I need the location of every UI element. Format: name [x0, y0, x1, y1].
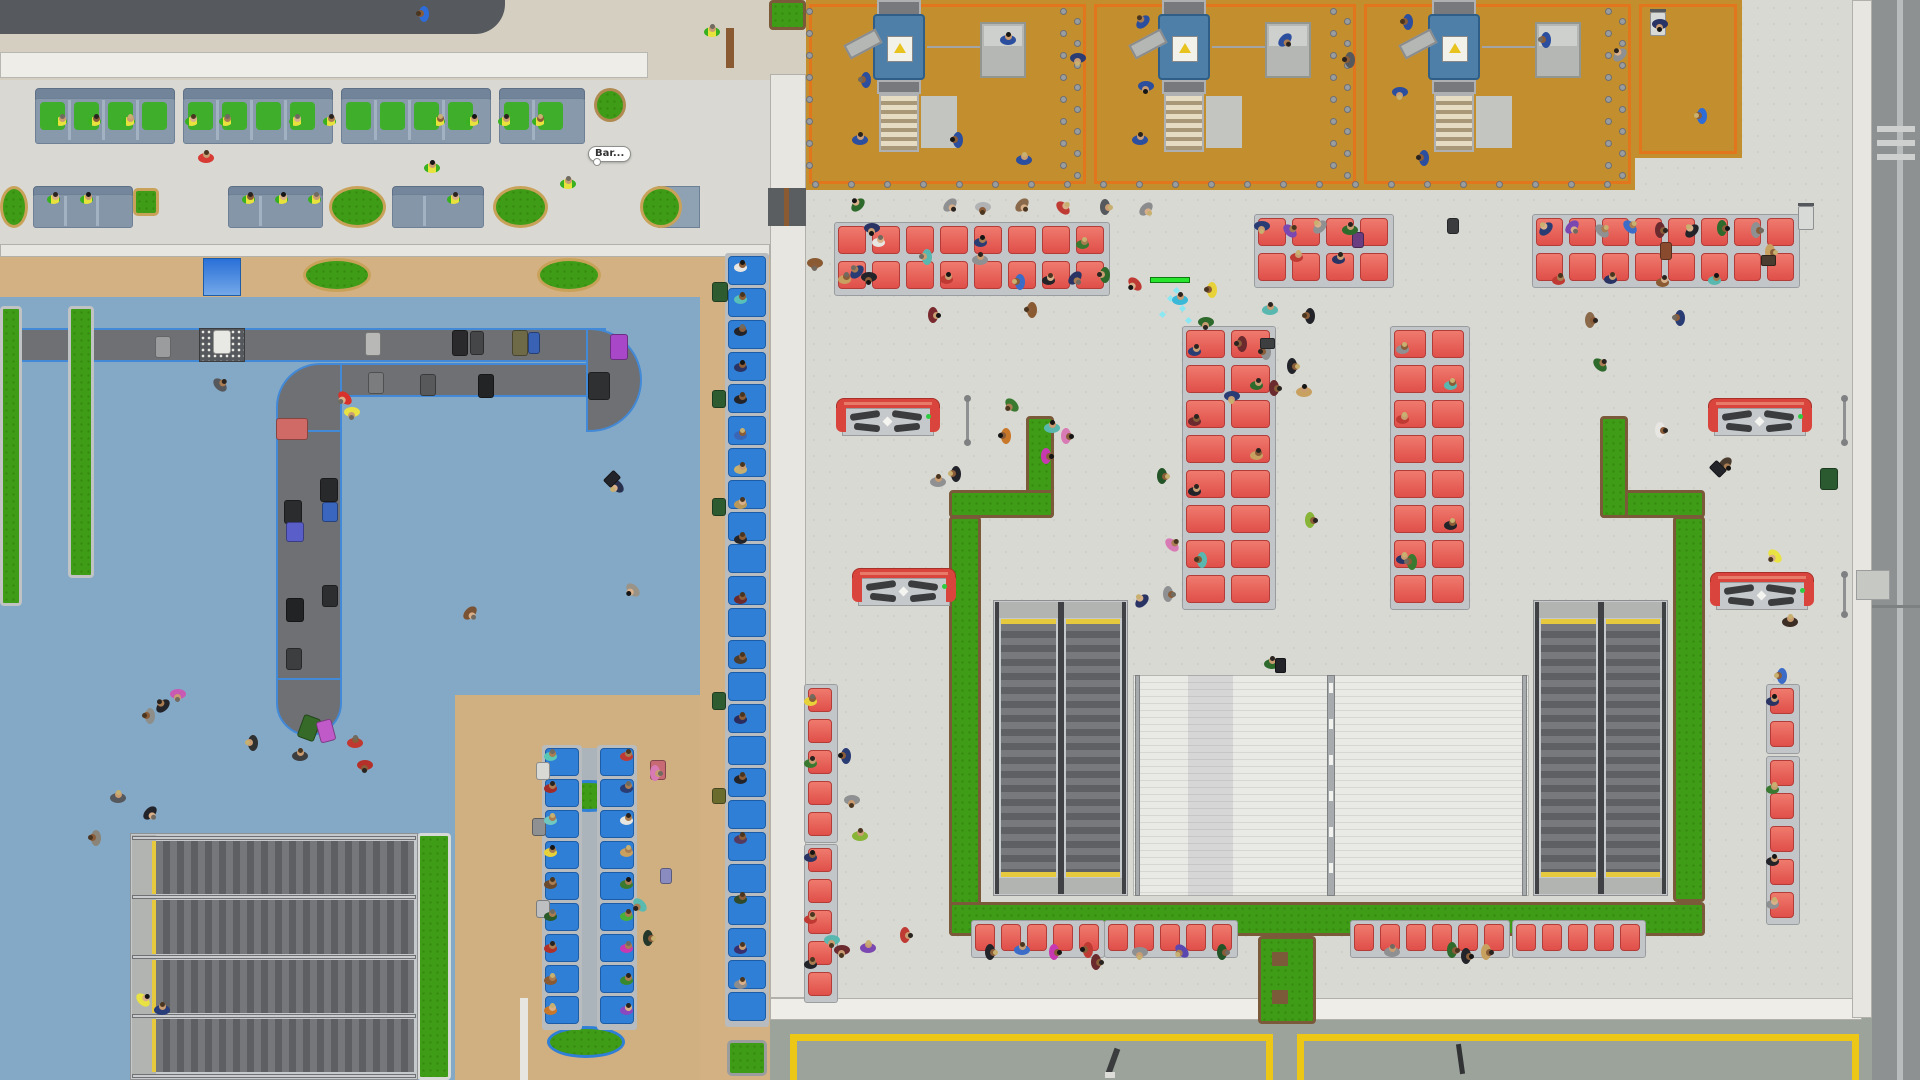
escalator-rail — [1662, 602, 1666, 894]
passenger[interactable] — [1159, 585, 1177, 603]
seat-strip-wall-left-1[interactable] — [808, 812, 832, 836]
kiosk-roof-stripe — [844, 402, 932, 405]
bench-armrest — [259, 196, 262, 226]
passenger[interactable] — [1257, 343, 1275, 361]
passenger[interactable] — [860, 268, 878, 286]
passenger[interactable] — [803, 956, 821, 974]
staff-member[interactable] — [184, 113, 202, 131]
person-hair — [1772, 897, 1777, 902]
passenger[interactable] — [859, 939, 877, 957]
passenger[interactable] — [543, 1002, 561, 1020]
security-officer[interactable] — [1537, 31, 1555, 49]
passenger[interactable] — [1096, 198, 1114, 216]
baggage-intake-chute[interactable] — [203, 258, 241, 296]
security-officer[interactable] — [1415, 149, 1433, 167]
hedge[interactable] — [1600, 416, 1628, 518]
planter-oval[interactable] — [594, 88, 626, 122]
passenger[interactable] — [1341, 221, 1359, 239]
passenger[interactable] — [939, 271, 957, 289]
passenger[interactable] — [733, 323, 751, 341]
passenger[interactable] — [1477, 943, 1495, 961]
seat-row-bottom-right-1[interactable] — [1354, 924, 1374, 951]
passenger[interactable] — [1655, 274, 1673, 292]
passenger[interactable] — [543, 748, 561, 766]
passenger[interactable] — [619, 876, 637, 894]
kiosk-status-light — [1800, 588, 1805, 593]
passenger[interactable] — [947, 465, 965, 483]
passenger[interactable] — [733, 941, 751, 959]
seat-column-mid-left[interactable] — [1186, 575, 1225, 603]
passenger[interactable] — [1096, 266, 1114, 284]
passenger[interactable] — [733, 591, 751, 609]
escalator-rail — [132, 955, 416, 959]
passenger[interactable] — [733, 651, 751, 669]
passenger[interactable] — [843, 791, 861, 809]
seat-column-mid-right[interactable] — [1432, 540, 1464, 568]
passenger[interactable] — [733, 427, 751, 445]
seat-column-mid-right[interactable] — [1394, 435, 1426, 463]
seat-row-bottom-left-2[interactable] — [1108, 924, 1128, 951]
passenger[interactable] — [1187, 483, 1205, 501]
passenger[interactable] — [1283, 357, 1301, 375]
seat-column-mid-left[interactable] — [1231, 540, 1270, 568]
passenger[interactable] — [1651, 421, 1669, 439]
seat-row-b[interactable] — [1258, 253, 1286, 281]
seat-strip-wall-left-1[interactable] — [808, 719, 832, 743]
queue-stanchion-dot — [1028, 181, 1035, 188]
passenger[interactable] — [619, 812, 637, 830]
seat-column-mid-left[interactable] — [1186, 365, 1225, 393]
passenger[interactable] — [197, 149, 215, 167]
person-hair — [858, 828, 863, 833]
passenger[interactable] — [1023, 301, 1041, 319]
seat-strip-wall-right-2[interactable] — [1770, 826, 1794, 852]
passenger[interactable] — [733, 496, 751, 514]
passenger[interactable] — [291, 747, 309, 765]
passenger[interactable] — [981, 943, 999, 961]
staff-member[interactable] — [121, 113, 139, 131]
tan-strip-baggage — [0, 257, 770, 297]
passenger[interactable] — [1671, 309, 1689, 327]
passenger[interactable] — [1747, 221, 1765, 239]
passenger[interactable] — [109, 789, 127, 807]
seat-column-mid-right[interactable] — [1394, 365, 1426, 393]
person-hair — [1069, 434, 1074, 439]
passenger[interactable] — [543, 812, 561, 830]
waiting-bench[interactable] — [392, 194, 484, 228]
person-hair — [740, 292, 745, 297]
passenger[interactable] — [1187, 343, 1205, 361]
passenger[interactable] — [543, 972, 561, 990]
hedge[interactable] — [0, 306, 22, 606]
seat-row-bottom-right-2[interactable] — [1620, 924, 1640, 951]
passenger[interactable] — [1651, 221, 1669, 239]
seat-row-bottom-right-2[interactable] — [1568, 924, 1588, 951]
passenger[interactable] — [1223, 387, 1241, 405]
passenger[interactable] — [153, 1001, 171, 1019]
bench-column-corridor[interactable] — [728, 800, 766, 829]
passenger[interactable] — [646, 764, 664, 782]
passenger[interactable] — [141, 707, 159, 725]
luggage-item — [712, 498, 726, 516]
escalator-rail — [132, 836, 416, 840]
passenger[interactable] — [973, 234, 991, 252]
passenger[interactable] — [1069, 49, 1087, 67]
person-hair — [950, 137, 955, 142]
xray-scan-item-icon — [894, 43, 906, 53]
passenger[interactable] — [1289, 249, 1307, 267]
passenger[interactable] — [415, 5, 433, 23]
passenger[interactable] — [1395, 411, 1413, 429]
staff-member[interactable] — [307, 191, 325, 209]
person-hair — [998, 433, 1003, 438]
planter-oval[interactable] — [0, 186, 28, 228]
stanchion-ball — [1841, 571, 1848, 578]
passenger[interactable] — [1213, 943, 1231, 961]
person-hair — [810, 850, 815, 855]
passenger[interactable] — [619, 972, 637, 990]
passenger[interactable] — [543, 844, 561, 862]
seat-column-mid-left[interactable] — [1186, 505, 1225, 533]
passenger[interactable] — [1193, 551, 1211, 569]
seat-row-bottom-right-2[interactable] — [1594, 924, 1614, 951]
passenger[interactable] — [733, 531, 751, 549]
passenger[interactable] — [1265, 379, 1283, 397]
passenger[interactable] — [1249, 377, 1267, 395]
hedge[interactable] — [769, 0, 806, 30]
passenger[interactable] — [1551, 272, 1569, 290]
planter-oval[interactable] — [303, 258, 371, 292]
wall-sliver-foodcourt — [520, 998, 528, 1080]
passenger[interactable] — [1011, 273, 1029, 291]
passenger[interactable] — [971, 251, 989, 269]
passenger[interactable] — [837, 747, 855, 765]
passenger[interactable] — [733, 976, 751, 994]
hedge[interactable] — [68, 306, 94, 578]
security-officer[interactable] — [1391, 83, 1409, 101]
seat-column-mid-right[interactable] — [1432, 575, 1464, 603]
seat-column-mid-right[interactable] — [1432, 470, 1464, 498]
person-hair — [1296, 250, 1301, 255]
bench-column-corridor[interactable] — [728, 672, 766, 701]
staff-member[interactable] — [497, 113, 515, 131]
staff-member[interactable] — [559, 175, 577, 193]
queue-stanchion-dot — [1100, 181, 1107, 188]
xray-exit-conveyor[interactable] — [877, 80, 921, 94]
passenger[interactable] — [1693, 107, 1711, 125]
passenger[interactable] — [543, 876, 561, 894]
passenger[interactable] — [619, 940, 637, 958]
passenger[interactable] — [1057, 427, 1075, 445]
passenger[interactable] — [1765, 693, 1783, 711]
seat-column-mid-right[interactable] — [1394, 505, 1426, 533]
security-officer[interactable] — [1399, 13, 1417, 31]
escalator-yellow-strip — [1541, 619, 1596, 624]
passenger[interactable] — [803, 693, 821, 711]
passenger[interactable] — [733, 359, 751, 377]
passenger[interactable] — [1383, 943, 1401, 961]
passenger[interactable] — [1331, 251, 1349, 269]
staff-member[interactable] — [465, 113, 483, 131]
hedge[interactable] — [1258, 936, 1316, 1024]
passenger[interactable] — [1443, 377, 1461, 395]
passenger[interactable] — [851, 827, 869, 845]
xray-exit-conveyor[interactable] — [1162, 80, 1206, 94]
person-hair — [1256, 448, 1261, 453]
escalator-rail — [132, 1074, 416, 1078]
luggage-item — [322, 502, 338, 522]
passenger[interactable] — [1773, 667, 1791, 685]
passenger[interactable] — [803, 849, 821, 867]
seat-row-c[interactable] — [1569, 253, 1596, 281]
passenger[interactable] — [619, 1002, 637, 1020]
passenger[interactable] — [871, 234, 889, 252]
seat-strip-wall-left-2[interactable] — [808, 879, 832, 903]
planter-oval[interactable] — [537, 258, 601, 292]
luggage-item — [478, 374, 494, 398]
passenger[interactable] — [356, 756, 374, 774]
hedge[interactable] — [417, 833, 451, 1080]
seat-column-mid-right[interactable] — [1394, 470, 1426, 498]
passenger[interactable] — [1153, 467, 1171, 485]
stanchion-pole — [1843, 398, 1846, 442]
passenger[interactable] — [1263, 655, 1281, 673]
game-viewport[interactable]: Bar... — [0, 0, 1920, 1080]
ground-mark — [1877, 140, 1915, 146]
passenger[interactable] — [837, 271, 855, 289]
queue-stanchion-dot — [1330, 8, 1337, 15]
security-officer[interactable] — [851, 131, 869, 149]
security-officer[interactable] — [857, 71, 875, 89]
queue-stanchion-dot — [1344, 172, 1351, 179]
person-hair — [53, 192, 58, 197]
passenger[interactable] — [1457, 947, 1475, 965]
hedge[interactable] — [1673, 516, 1705, 902]
security-officer[interactable] — [1131, 131, 1149, 149]
passenger[interactable] — [803, 911, 821, 929]
person-hair — [1194, 484, 1199, 489]
seat-row-bottom-right-1[interactable] — [1406, 924, 1426, 951]
seat-row-a[interactable] — [1042, 226, 1070, 254]
passenger[interactable] — [1171, 291, 1189, 309]
passenger[interactable] — [1301, 307, 1319, 325]
bench-column-corridor[interactable] — [728, 736, 766, 765]
stanchion-pole — [1843, 574, 1846, 614]
staff-member[interactable] — [218, 113, 236, 131]
staff-member[interactable] — [53, 113, 71, 131]
passenger[interactable] — [1087, 953, 1105, 971]
staff-member[interactable] — [288, 113, 306, 131]
passenger[interactable] — [1187, 413, 1205, 431]
passenger[interactable] — [806, 254, 824, 272]
passenger[interactable] — [924, 306, 942, 324]
passenger[interactable] — [346, 734, 364, 752]
passenger[interactable] — [997, 427, 1015, 445]
passenger[interactable] — [1261, 301, 1279, 319]
security-officer[interactable] — [1015, 151, 1033, 169]
kiosk-status-light — [942, 584, 947, 589]
luggage-item — [660, 868, 672, 884]
passenger[interactable] — [343, 403, 361, 421]
seat-column-mid-left[interactable] — [1231, 505, 1270, 533]
person-hair — [919, 254, 924, 259]
passenger[interactable] — [619, 780, 637, 798]
passenger[interactable] — [929, 473, 947, 491]
queue-stanchion-dot — [956, 181, 963, 188]
staff-member[interactable] — [274, 191, 292, 209]
staff-member[interactable] — [703, 23, 721, 41]
passenger[interactable] — [733, 291, 751, 309]
person-hair — [810, 912, 815, 917]
passenger[interactable] — [543, 780, 561, 798]
staff-member[interactable] — [431, 113, 449, 131]
escalator-steps — [1606, 624, 1661, 872]
passenger[interactable] — [1045, 943, 1063, 961]
staff-member[interactable] — [531, 113, 549, 131]
escalator-yellow-strip — [1001, 619, 1056, 624]
passenger[interactable] — [1765, 781, 1783, 799]
seat-column-mid-right[interactable] — [1432, 435, 1464, 463]
passenger[interactable] — [1301, 511, 1319, 529]
passenger[interactable] — [1075, 236, 1093, 254]
passenger[interactable] — [639, 929, 657, 947]
seat-row-c[interactable] — [1734, 253, 1761, 281]
seat-row-b[interactable] — [1360, 253, 1388, 281]
passenger[interactable] — [1765, 896, 1783, 914]
passenger[interactable] — [1233, 335, 1251, 353]
seat-row-a[interactable] — [1008, 226, 1036, 254]
hedge[interactable] — [949, 490, 1054, 518]
staff-member[interactable] — [87, 113, 105, 131]
xray-exit-conveyor[interactable] — [1432, 80, 1476, 94]
seat-column-mid-right[interactable] — [1432, 400, 1464, 428]
bench-armrest — [64, 196, 67, 226]
queue-stanchion-dot — [806, 74, 813, 81]
passenger[interactable] — [1761, 243, 1779, 261]
passenger[interactable] — [733, 461, 751, 479]
planter-oval[interactable] — [547, 1026, 625, 1058]
person-hair — [1225, 950, 1230, 955]
passenger[interactable] — [1765, 853, 1783, 871]
luggage-item — [512, 330, 528, 356]
passenger[interactable] — [1603, 271, 1621, 289]
bench-column-corridor[interactable] — [728, 992, 766, 1021]
passenger[interactable] — [1781, 613, 1799, 631]
passenger[interactable] — [169, 685, 187, 703]
passenger[interactable] — [1443, 517, 1461, 535]
seat-row-a[interactable] — [940, 226, 968, 254]
seat-row-bottom-right-2[interactable] — [1542, 924, 1562, 951]
person-hair — [710, 24, 715, 29]
passenger[interactable] — [733, 891, 751, 909]
queue-stanchion-dot — [806, 52, 813, 59]
passenger[interactable] — [1253, 217, 1271, 235]
passenger[interactable] — [803, 755, 821, 773]
planter-oval[interactable] — [640, 186, 682, 228]
passenger[interactable] — [918, 248, 936, 266]
passenger[interactable] — [896, 926, 914, 944]
security-officer[interactable] — [1137, 77, 1155, 95]
seat-column-mid-right[interactable] — [1432, 330, 1464, 358]
seat-row-bottom-right-2[interactable] — [1516, 924, 1536, 951]
passenger[interactable] — [733, 259, 751, 277]
staff-member[interactable] — [241, 191, 259, 209]
planter-square[interactable] — [133, 188, 159, 216]
planter-square[interactable] — [727, 1040, 767, 1076]
passenger[interactable] — [1197, 313, 1215, 331]
security-officer[interactable] — [949, 131, 967, 149]
seat-strip-wall-left-2[interactable] — [808, 972, 832, 996]
staff-member[interactable] — [322, 113, 340, 131]
planter-oval[interactable] — [329, 186, 386, 228]
bench-column-corridor[interactable] — [728, 864, 766, 893]
person-hair — [1714, 273, 1719, 278]
passenger[interactable] — [1295, 383, 1313, 401]
person-hair — [1012, 279, 1017, 284]
passenger[interactable] — [1131, 943, 1149, 961]
passenger[interactable] — [1203, 281, 1221, 299]
passenger[interactable] — [1341, 51, 1359, 69]
bench-column-corridor[interactable] — [728, 608, 766, 637]
passenger[interactable] — [1013, 941, 1031, 959]
passenger[interactable] — [619, 844, 637, 862]
person-hair — [1108, 205, 1113, 210]
passenger[interactable] — [733, 711, 751, 729]
seat-strip-wall-left-1[interactable] — [808, 781, 832, 805]
passenger[interactable] — [244, 734, 262, 752]
security-officer[interactable] — [999, 31, 1017, 49]
right-service-road — [1872, 0, 1920, 1080]
passenger[interactable] — [733, 391, 751, 409]
seat-column-mid-right[interactable] — [1394, 575, 1426, 603]
passenger[interactable] — [974, 198, 992, 216]
passenger[interactable] — [543, 908, 561, 926]
seat-strip-wall-right-1[interactable] — [1770, 721, 1794, 747]
passenger[interactable] — [733, 771, 751, 789]
passenger[interactable] — [1249, 447, 1267, 465]
luggage-trolley[interactable] — [1798, 206, 1814, 230]
passenger[interactable] — [1581, 311, 1599, 329]
passenger[interactable] — [543, 940, 561, 958]
seat-column-mid-left[interactable] — [1231, 575, 1270, 603]
staff-member[interactable] — [423, 159, 441, 177]
seat-column-mid-left[interactable] — [1186, 435, 1225, 463]
passenger[interactable] — [1037, 447, 1055, 465]
passenger[interactable] — [1713, 219, 1731, 237]
escalator-steps — [156, 900, 414, 953]
planter-oval[interactable] — [493, 186, 548, 228]
seat-row-b[interactable] — [1360, 218, 1388, 246]
queue-stanchion-dot — [1060, 118, 1067, 125]
seat-row-a[interactable] — [838, 226, 866, 254]
seat-column-mid-left[interactable] — [1231, 470, 1270, 498]
staff-member[interactable] — [46, 191, 64, 209]
passenger[interactable] — [1651, 15, 1669, 33]
person-hair — [1256, 378, 1261, 383]
staff-member[interactable] — [79, 191, 97, 209]
passenger[interactable] — [1395, 341, 1413, 359]
passenger[interactable] — [1403, 553, 1421, 571]
passenger[interactable] — [1707, 272, 1725, 290]
passenger[interactable] — [619, 748, 637, 766]
passenger[interactable] — [87, 829, 105, 847]
passenger[interactable] — [733, 831, 751, 849]
passenger[interactable] — [1041, 272, 1059, 290]
seat-row-c[interactable] — [1767, 218, 1794, 246]
staff-member[interactable] — [446, 191, 464, 209]
escalator-steps — [156, 960, 414, 1013]
passenger[interactable] — [823, 931, 841, 949]
